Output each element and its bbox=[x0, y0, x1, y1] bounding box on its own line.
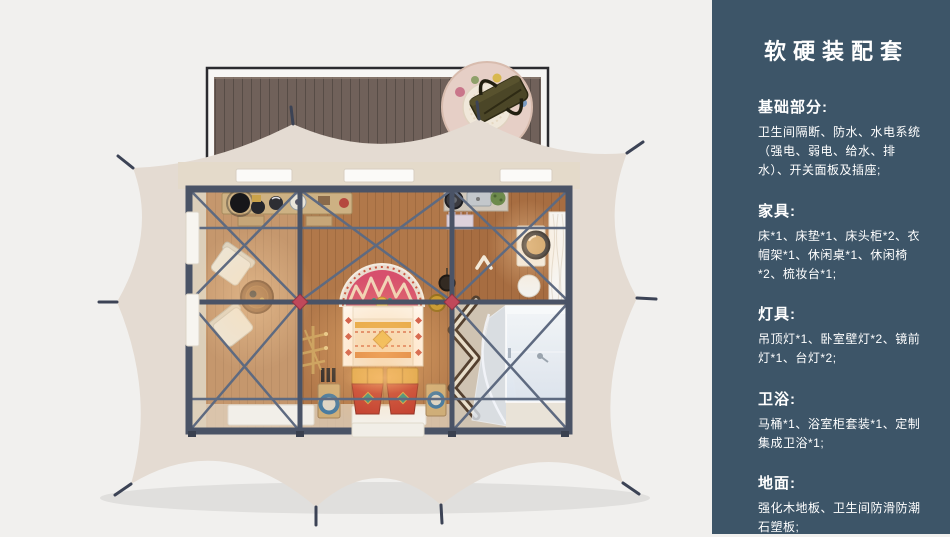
section-body: 强化木地板、卫生间防滑防潮石塑板; bbox=[758, 499, 922, 537]
section-body: 卫生间隔断、防水、水电系统（强电、弱电、给水、排水）、开关面板及插座; bbox=[758, 123, 922, 181]
hat bbox=[230, 193, 250, 213]
spec-section-lighting: 灯具: 吊顶灯*1、卧室壁灯*2、镜前灯*1、台灯*2; bbox=[758, 303, 922, 368]
spec-section-bathroom: 卫浴: 马桶*1、浴室柜套装*1、定制集成卫浴*1; bbox=[758, 388, 922, 453]
section-heading: 基础部分: bbox=[758, 96, 922, 117]
plant bbox=[491, 191, 506, 206]
tent-shadow bbox=[100, 482, 650, 514]
floorplan-render bbox=[0, 0, 712, 534]
section-heading: 家具: bbox=[758, 200, 922, 221]
shower-enclosure bbox=[472, 306, 566, 428]
section-heading: 灯具: bbox=[758, 303, 922, 324]
section-body: 马桶*1、浴室柜套装*1、定制集成卫浴*1; bbox=[758, 415, 922, 453]
window bbox=[186, 294, 199, 346]
tent-floorplan-scene bbox=[0, 0, 712, 534]
section-heading: 卫浴: bbox=[758, 388, 922, 409]
spec-section-basics: 基础部分: 卫生间隔断、防水、水电系统（强电、弱电、给水、排水）、开关面板及插座… bbox=[758, 96, 922, 181]
section-body: 吊顶灯*1、卧室壁灯*2、镜前灯*1、台灯*2; bbox=[758, 330, 922, 368]
section-body: 床*1、床垫*1、床头柜*2、衣帽架*1、休闲桌*1、休闲椅*2、梳妆台*1; bbox=[758, 227, 922, 285]
section-heading: 地面: bbox=[758, 472, 922, 493]
door-threshold bbox=[352, 423, 424, 437]
spec-section-furniture: 家具: 床*1、床垫*1、床头柜*2、衣帽架*1、休闲桌*1、休闲椅*2、梳妆台… bbox=[758, 200, 922, 285]
panel-title: 软硬装配套 bbox=[744, 34, 922, 66]
ceiling-vent bbox=[500, 169, 552, 182]
hat bbox=[251, 200, 265, 214]
spec-section-flooring: 地面: 强化木地板、卫生间防滑防潮石塑板; bbox=[758, 472, 922, 537]
ceiling-vent bbox=[236, 169, 292, 182]
spec-panel: 软硬装配套 基础部分: 卫生间隔断、防水、水电系统（强电、弱电、给水、排水）、开… bbox=[712, 0, 950, 534]
top-wall bbox=[178, 162, 580, 189]
ceiling-vent bbox=[344, 169, 414, 182]
window bbox=[186, 212, 199, 264]
